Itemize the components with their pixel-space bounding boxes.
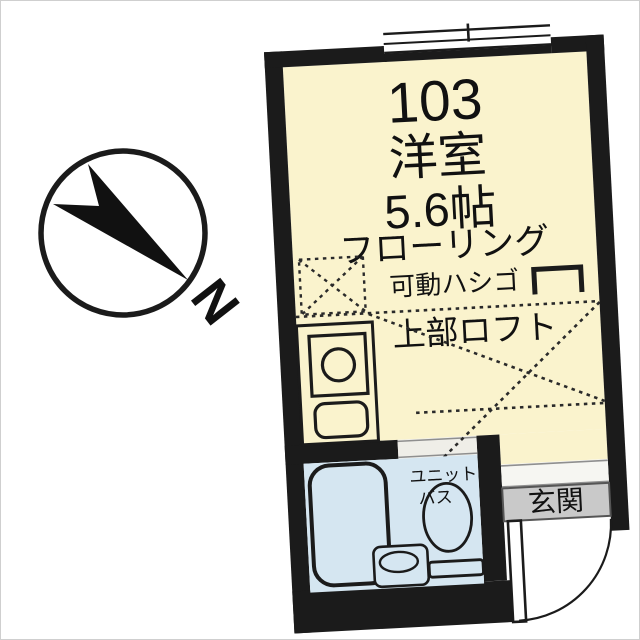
room-number-label: 103 <box>386 67 484 136</box>
window-center-tick <box>468 24 469 42</box>
apartment-unit: 103 洋室 5.6帖 フローリング 可動ハシゴ 上部ロフト <box>263 17 634 634</box>
north-arrow-icon <box>53 164 188 280</box>
entrance-area: 玄関 <box>501 459 616 622</box>
floor-plan-drawing: N <box>1 1 640 640</box>
compass: N <box>41 151 251 336</box>
unit-bath-label-line1: ユニット <box>409 464 478 487</box>
hall-floor <box>499 429 607 465</box>
unit-bath-label-line2: バス <box>418 488 453 509</box>
room-type-label: 洋室 <box>387 128 488 187</box>
entrance-label: 玄関 <box>527 485 585 519</box>
entrance-door-arc <box>514 519 616 621</box>
floor-plan-image: N <box>0 0 640 640</box>
unit-bath: ユニット バス <box>304 455 485 593</box>
toilet-tank <box>429 560 484 578</box>
